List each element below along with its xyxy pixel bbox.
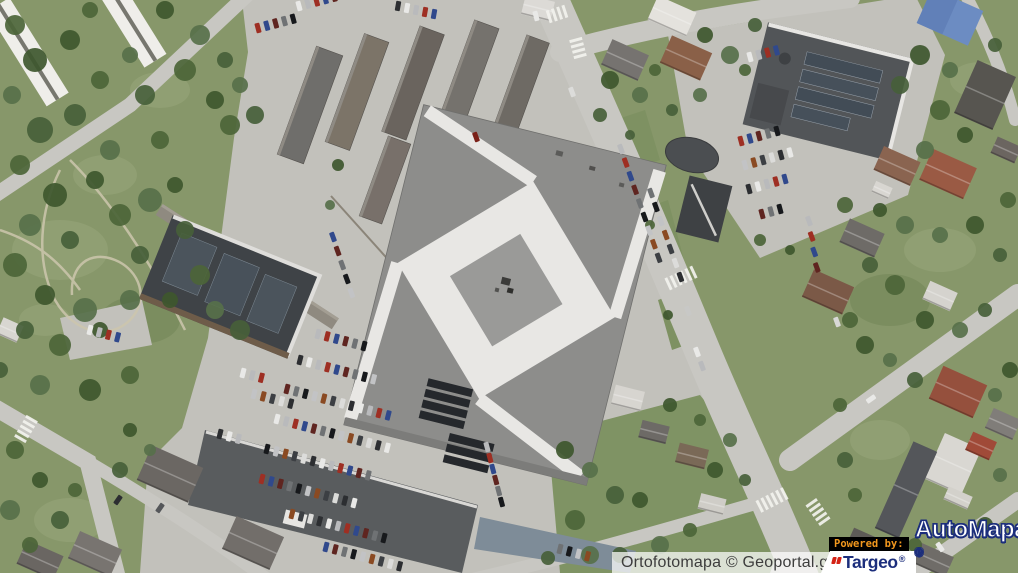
automapa-wordmark: AutoMapa [915,516,1018,543]
targeo-wordmark: Targeo [843,552,898,573]
targeo-registered-mark: ® [899,554,905,564]
automapa-logo[interactable]: AutoMapa ® [915,516,1018,572]
powered-by-label: Powered by: [829,537,909,552]
targeo-logo[interactable]: Targeo ® [821,551,916,573]
automapa-registered-mark: ® [915,547,923,559]
aerial-orthophoto-canvas[interactable] [0,0,1018,573]
map-viewport[interactable]: Ortofotomapa © Geoportal.gov.pl Powered … [0,0,1018,573]
map-attribution: Ortofotomapa © Geoportal.gov.pl [612,552,838,573]
